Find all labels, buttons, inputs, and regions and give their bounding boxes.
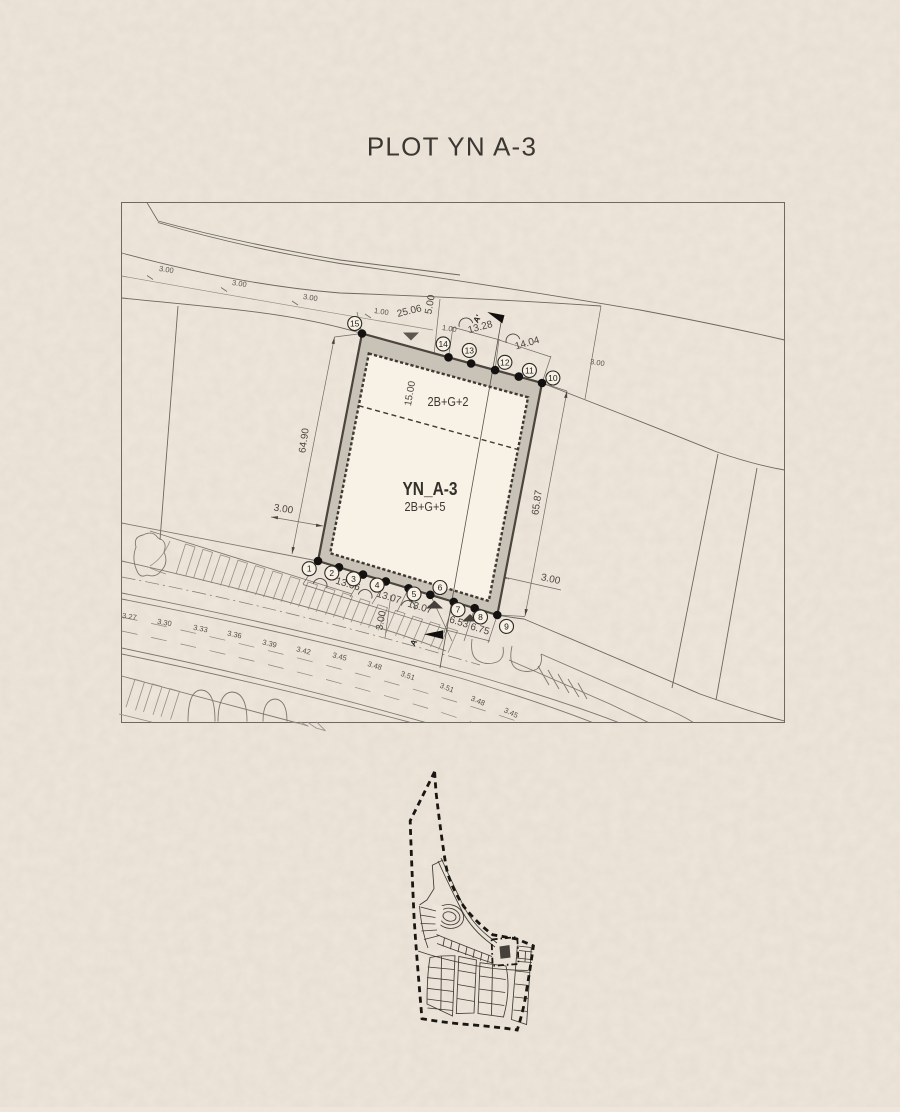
svg-text:12: 12 (500, 357, 510, 367)
svg-text:7: 7 (456, 605, 461, 615)
svg-text:2B+G+2: 2B+G+2 (428, 395, 469, 409)
svg-text:10: 10 (548, 373, 558, 383)
svg-text:1: 1 (307, 564, 312, 574)
svg-text:11: 11 (525, 365, 534, 375)
svg-text:3: 3 (351, 574, 356, 584)
svg-text:4: 4 (375, 580, 380, 590)
svg-text:6: 6 (438, 583, 443, 593)
svg-text:YN_A-3: YN_A-3 (403, 478, 458, 499)
svg-text:2: 2 (329, 568, 334, 578)
svg-text:2B+G+5: 2B+G+5 (405, 500, 446, 514)
svg-text:9: 9 (504, 621, 509, 631)
svg-text:5: 5 (412, 589, 417, 599)
svg-text:15: 15 (350, 319, 360, 329)
svg-text:8: 8 (478, 612, 483, 622)
svg-text:14: 14 (438, 339, 448, 349)
svg-text:13: 13 (465, 345, 475, 355)
